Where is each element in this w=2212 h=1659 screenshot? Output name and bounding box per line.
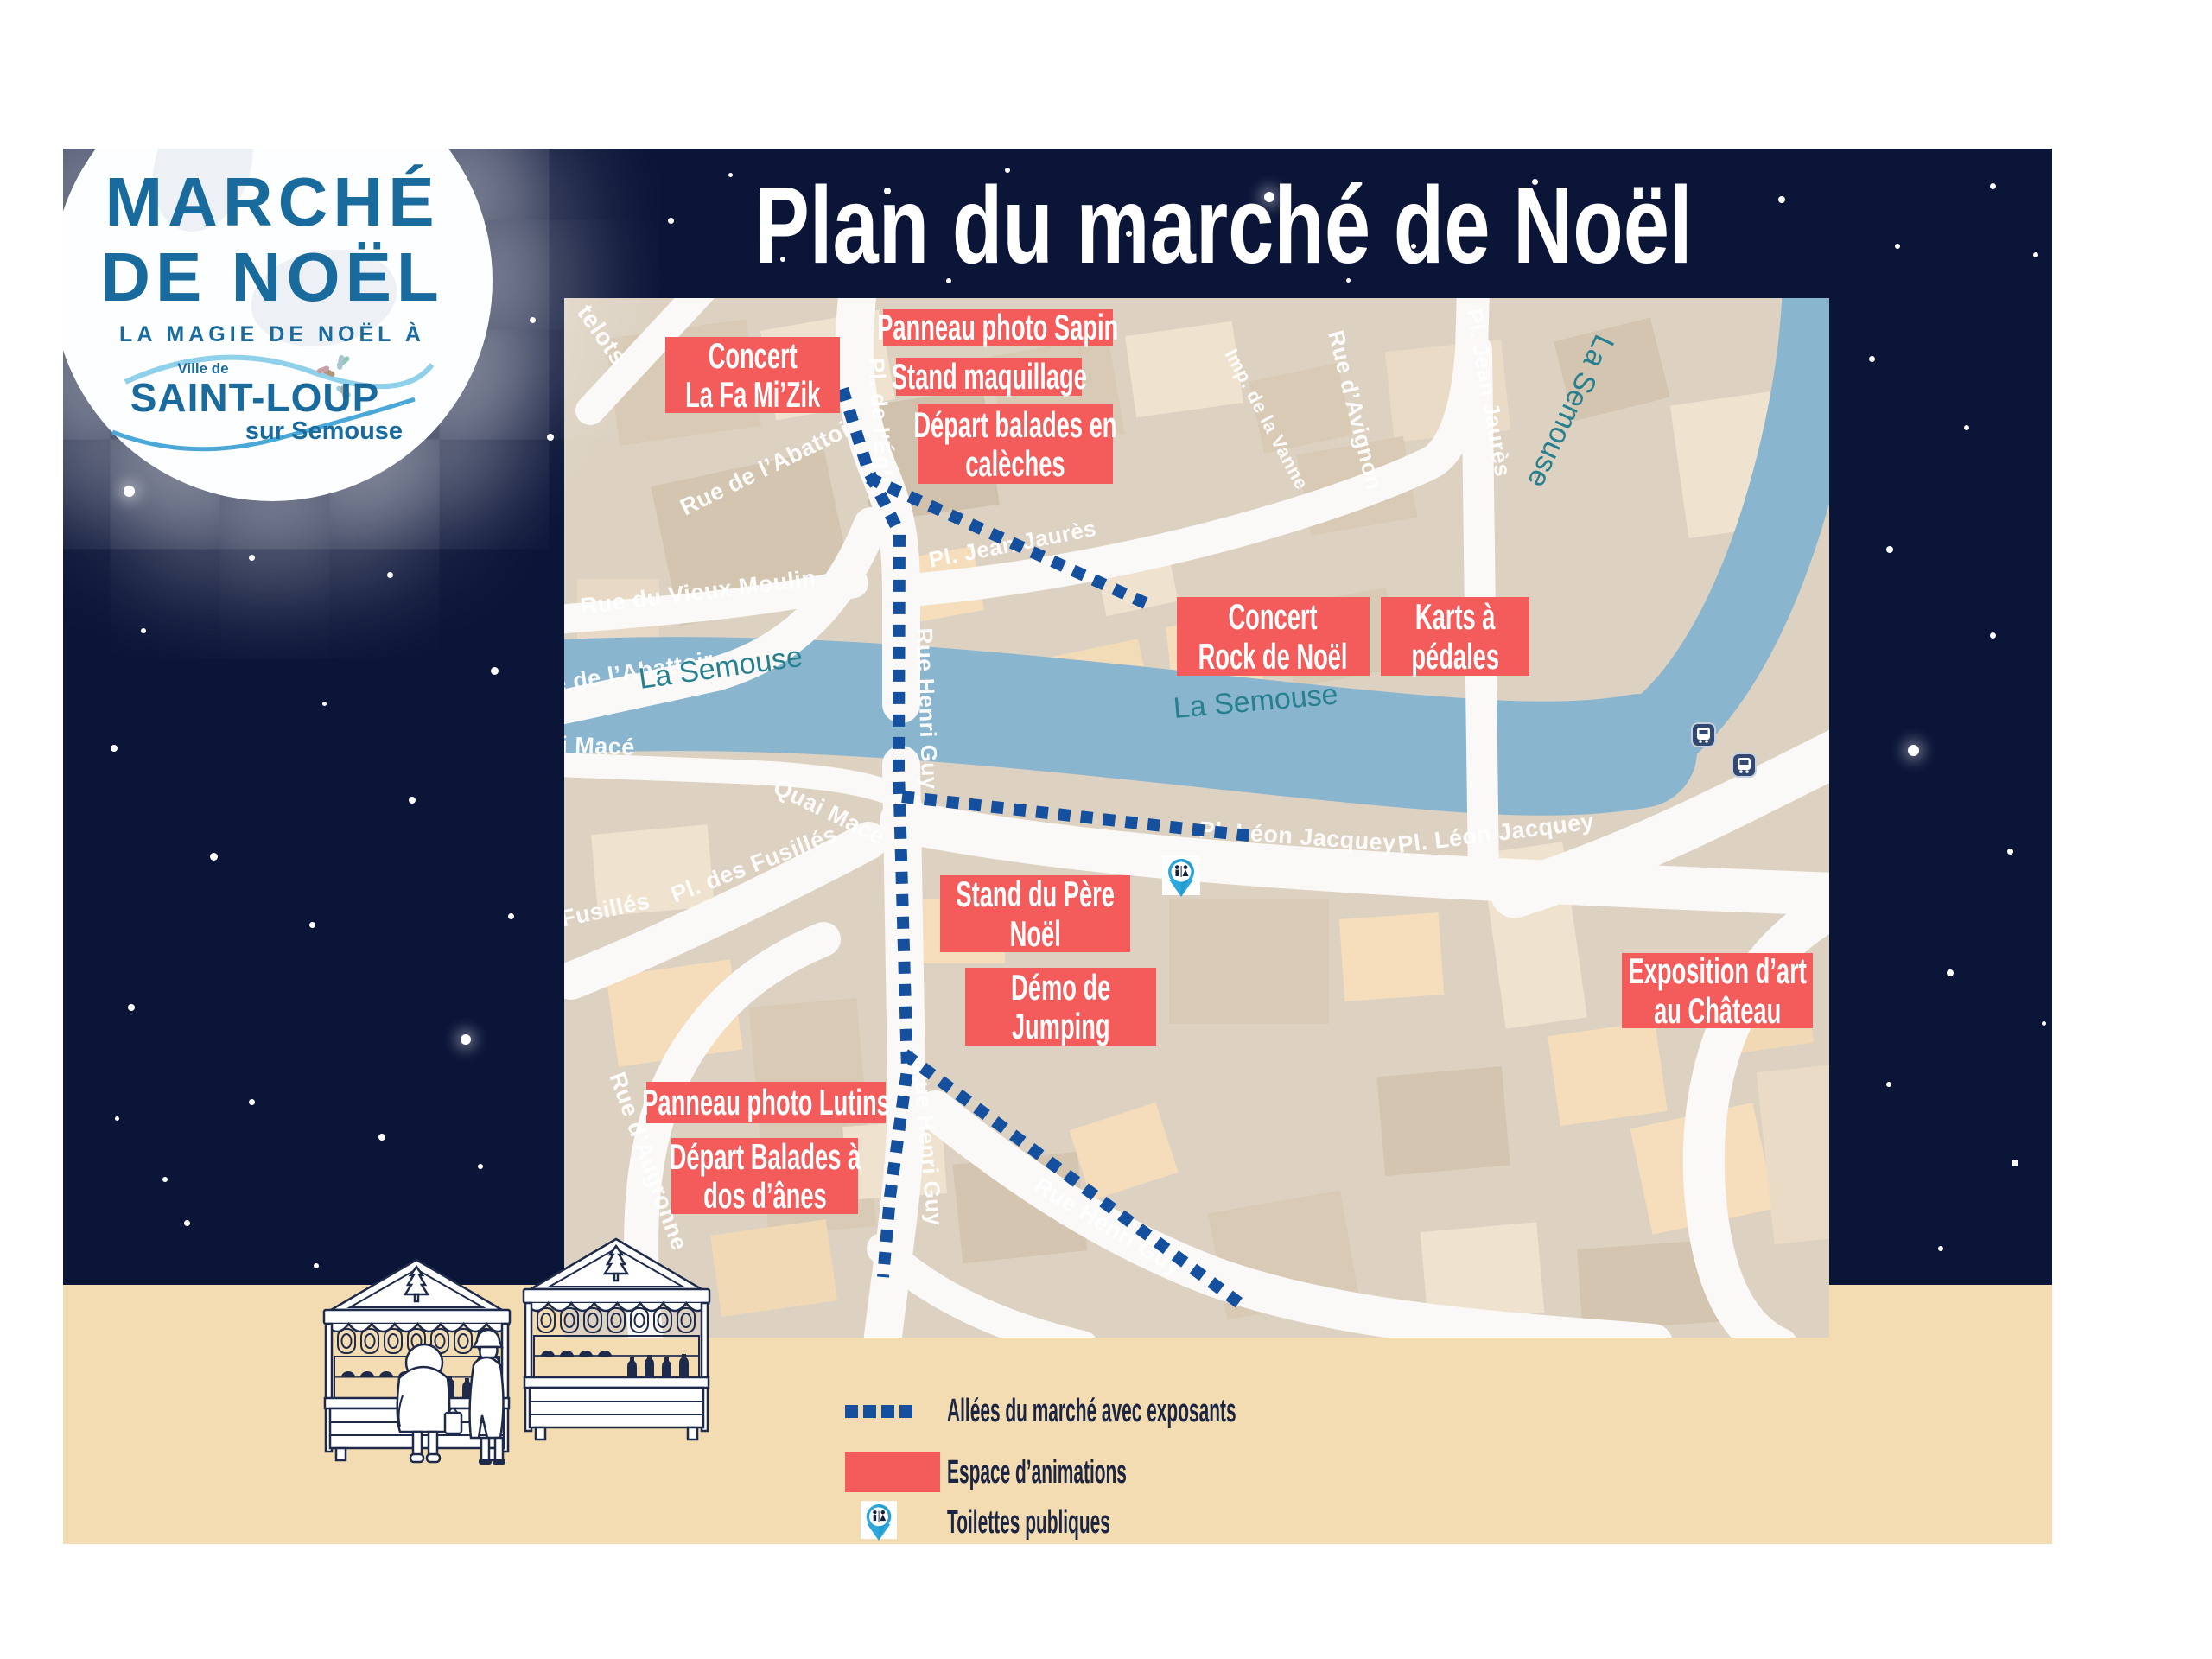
star [1964, 425, 1969, 430]
star [1990, 632, 1996, 639]
star [210, 853, 218, 861]
star [530, 317, 536, 323]
star [728, 173, 733, 177]
star [1990, 183, 1996, 189]
legend-label-alleys: Allées du marché avec exposants [947, 1393, 1236, 1430]
star [249, 555, 255, 561]
animation-label: Concert Rock de Noël [1177, 597, 1370, 676]
star [124, 486, 135, 497]
star [1938, 1246, 1943, 1251]
star [115, 1116, 119, 1121]
market-stall-right [524, 1239, 709, 1440]
star [2012, 1160, 2018, 1166]
toilets-icon [845, 1501, 947, 1544]
city-logo-name: SAINT-LOUP [63, 377, 493, 418]
city-logo-suffix: sur Semouse [63, 418, 493, 444]
star [1778, 196, 1785, 203]
star [309, 922, 315, 928]
star [378, 1134, 385, 1141]
animation-label: Panneau photo Sapin [883, 309, 1113, 346]
star [184, 1220, 190, 1226]
animation-label: Exposition d’art au Château [1622, 953, 1813, 1028]
star [668, 218, 674, 224]
star [314, 1263, 319, 1268]
animation-label: Démo de Jumping [965, 968, 1156, 1046]
animation-label: Stand du Père Noël [940, 875, 1130, 952]
logo-title-line1: MARCHÉ [63, 162, 493, 242]
star [387, 572, 393, 578]
legend-label-toilets: Toilettes publiques [947, 1504, 1110, 1541]
legend-row-alleys: Allées du marché avec exposants [845, 1393, 1472, 1430]
star [508, 913, 514, 919]
star [547, 434, 554, 441]
red-rect-swatch [845, 1452, 947, 1492]
star [1869, 356, 1875, 362]
animation-label: Karts à pédales [1381, 597, 1529, 676]
legend-row-toilets: Toilettes publiques [845, 1501, 1472, 1544]
page-title: Plan du marché de Noël [754, 162, 1575, 288]
logo-tagline: LA MAGIE DE NOËL À [63, 322, 493, 347]
star [162, 1177, 168, 1182]
star [1895, 244, 1900, 249]
moon: MARCHÉ DE NOËL LA MAGIE DE NOËL À Ville … [63, 149, 493, 501]
animation-label: Concert La Fa Mi’Zik [665, 337, 840, 413]
star [2042, 1021, 2046, 1026]
star [1908, 745, 1919, 756]
toilets-map-pin-icon [1162, 855, 1200, 900]
star [1886, 546, 1893, 553]
star [1947, 969, 1954, 976]
dotted-line-swatch [845, 1405, 947, 1418]
star [2007, 849, 2013, 855]
logo-title-line2: DE NOËL [63, 238, 493, 317]
star [461, 1034, 471, 1045]
star [322, 702, 327, 706]
poster-page: MARCHÉ DE NOËL LA MAGIE DE NOËL À Ville … [0, 0, 2212, 1659]
legend: Allées du marché avec exposants Espace d… [845, 1393, 1472, 1544]
star [2033, 252, 2038, 257]
star [141, 628, 146, 633]
animation-label: Départ balades en calèches [918, 404, 1113, 484]
star [128, 1004, 135, 1011]
animation-label: Départ Balades à dos d’ânes [671, 1138, 858, 1214]
market-map: telotsRue de l’AbattoirRue de l’Abattoir… [564, 298, 1829, 1338]
animation-label: Panneau photo Lutins [646, 1082, 886, 1123]
animation-labels-layer: Concert La Fa Mi’ZikPanneau photo SapinS… [564, 298, 1829, 1338]
star [409, 797, 416, 804]
star [249, 1099, 255, 1105]
animation-label: Stand maquillage [896, 358, 1082, 396]
star [491, 667, 499, 675]
legend-label-animations: Espace d’animations [947, 1454, 1127, 1491]
star [1886, 1082, 1891, 1087]
legend-row-animations: Espace d’animations [845, 1452, 1472, 1492]
flyer: MARCHÉ DE NOËL LA MAGIE DE NOËL À Ville … [63, 149, 2052, 1544]
city-logo: Ville de SAINT-LOUP sur Semouse [63, 361, 493, 445]
star [478, 1164, 483, 1169]
star [111, 745, 118, 752]
market-stalls-illustration [322, 1230, 711, 1490]
